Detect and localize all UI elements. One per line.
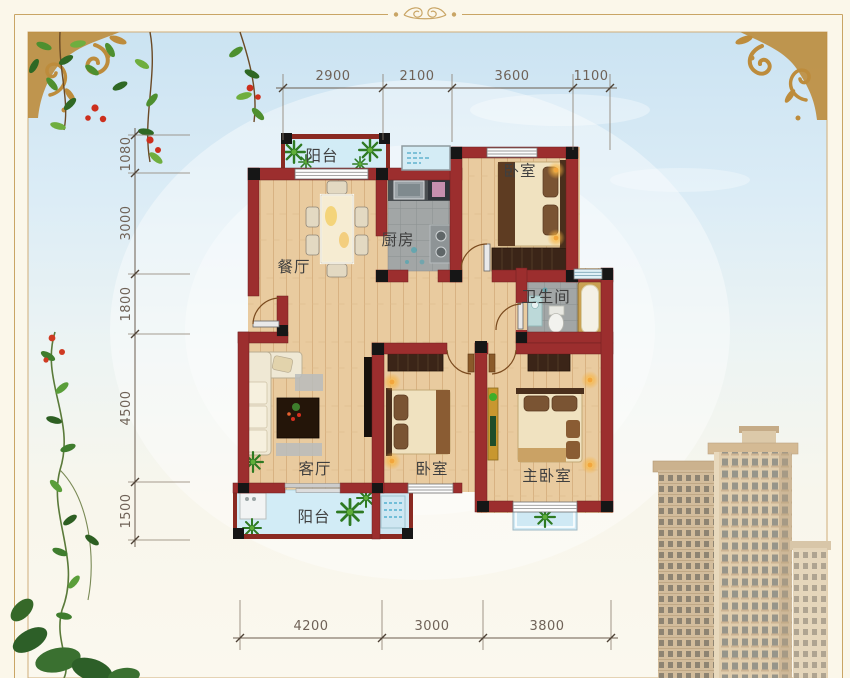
room-label-living: 客厅 — [298, 460, 331, 478]
tower-front-edge — [714, 452, 719, 678]
floor-plan-image: 阳台 厨房 卧室 餐厅 卫生间 客厅 卧室 主卧室 阳台 2900 2100 3… — [0, 0, 850, 678]
room-label-balcony-bottom: 阳台 — [297, 508, 330, 526]
bedroom-top-window — [487, 148, 537, 157]
kitchen-window-box — [402, 146, 450, 170]
dim-left-4: 4500 — [119, 390, 134, 425]
tower-right — [793, 548, 827, 678]
tower-front-shade — [779, 452, 792, 678]
tower-back — [658, 470, 720, 678]
room-label-bedroom-mid: 卧室 — [415, 460, 448, 478]
floor-plan-page: 阳台 厨房 卧室 餐厅 卫生间 客厅 卧室 主卧室 阳台 2900 2100 3… — [0, 0, 850, 678]
bedroom-mid-furniture — [383, 354, 450, 470]
room-label-master: 主卧室 — [522, 467, 572, 485]
dim-bottom-1: 4200 — [293, 619, 328, 634]
dim-bottom-2: 3000 — [414, 619, 449, 634]
dim-left-1: 1080 — [119, 136, 134, 171]
dim-left-2: 3000 — [119, 205, 134, 240]
cloud — [610, 168, 750, 192]
dim-top-4: 1100 — [573, 69, 608, 84]
dining-balcony-window — [295, 169, 368, 179]
dim-bottom-3: 3800 — [529, 619, 564, 634]
room-label-balcony-top: 阳台 — [305, 147, 338, 165]
tv-panel — [364, 357, 372, 437]
floor-plan: 阳台 厨房 卧室 餐厅 卫生间 客厅 卧室 主卧室 阳台 — [233, 133, 613, 539]
room-label-bedroom-top: 卧室 — [503, 162, 536, 180]
room-label-bathroom: 卫生间 — [521, 288, 571, 306]
cloud — [470, 94, 650, 126]
dim-left-3: 1800 — [119, 286, 134, 321]
dim-left-5: 1500 — [119, 493, 134, 528]
dim-top-1: 2900 — [315, 69, 350, 84]
bedroom-mid-window — [408, 484, 453, 493]
dim-top-2: 2100 — [399, 69, 434, 84]
bathroom-window — [574, 269, 602, 279]
balcony-divider-wall — [372, 487, 380, 539]
room-label-kitchen: 厨房 — [381, 231, 414, 249]
dim-top-3: 3600 — [494, 69, 529, 84]
room-label-dining: 餐厅 — [277, 258, 310, 276]
master-window — [513, 502, 577, 512]
